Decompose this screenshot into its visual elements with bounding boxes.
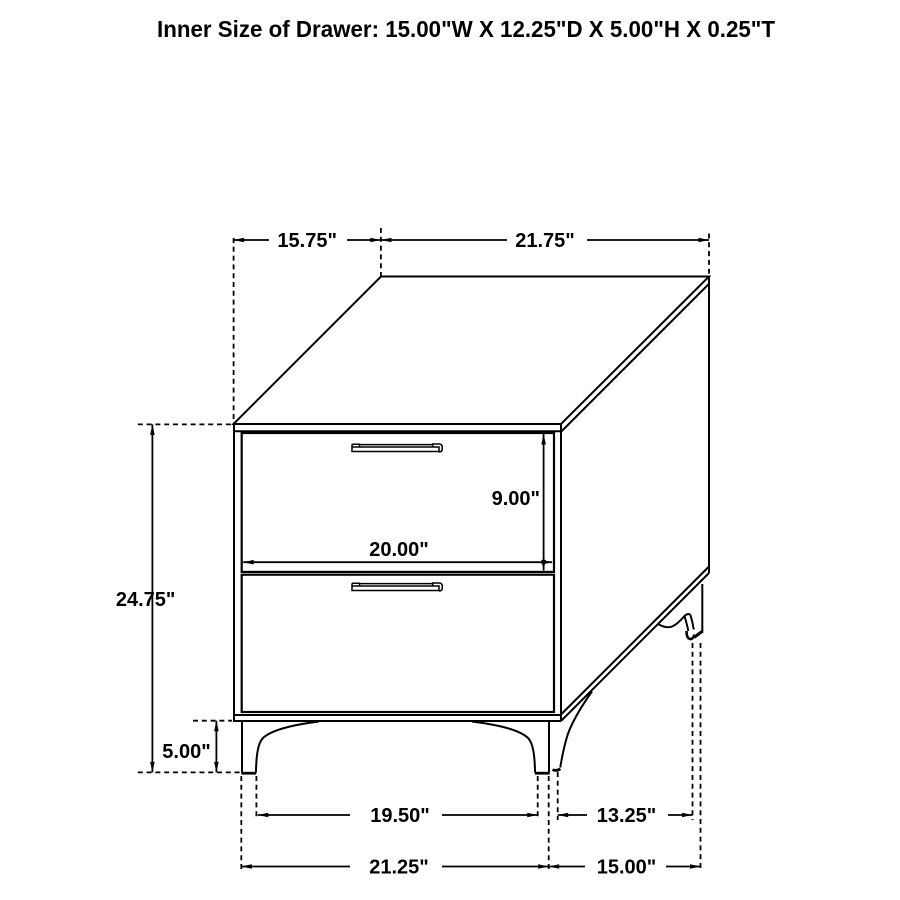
- svg-text:9.00": 9.00": [492, 488, 540, 510]
- svg-text:19.50": 19.50": [370, 805, 430, 827]
- svg-text:15.00": 15.00": [597, 857, 657, 879]
- svg-text:5.00": 5.00": [162, 741, 210, 763]
- svg-text:24.75": 24.75": [116, 589, 176, 611]
- svg-text:20.00": 20.00": [369, 539, 429, 561]
- svg-text:21.75": 21.75": [515, 230, 575, 252]
- svg-text:Inner Size of Drawer: 15.00"W: Inner Size of Drawer: 15.00"W X 12.25"D …: [157, 16, 775, 42]
- svg-text:21.25": 21.25": [369, 857, 429, 879]
- svg-text:15.75": 15.75": [277, 230, 337, 252]
- svg-text:13.25": 13.25": [597, 805, 657, 827]
